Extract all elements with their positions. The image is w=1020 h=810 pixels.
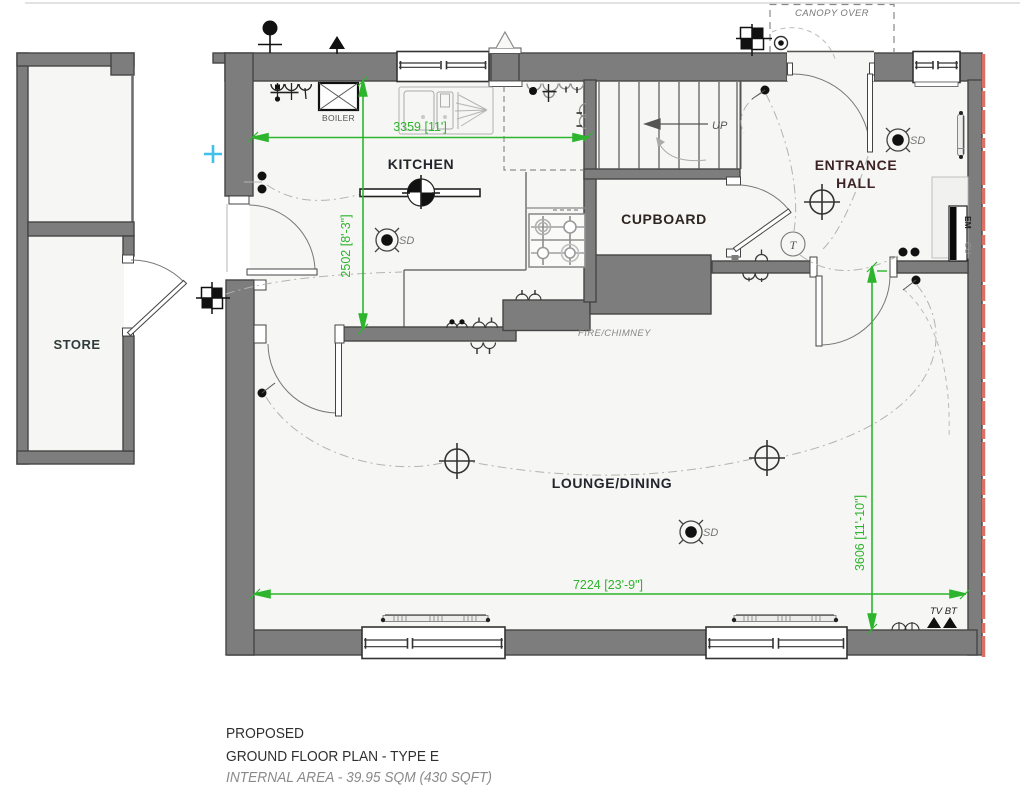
svg-text:CANOPY OVER: CANOPY OVER	[795, 8, 869, 19]
svg-text:INTERNAL AREA - 39.95 SQM (430: INTERNAL AREA - 39.95 SQM (430 SQFT)	[226, 769, 492, 786]
svg-text:3359 [11']: 3359 [11']	[393, 120, 447, 134]
svg-text:2502 [8'-3"]: 2502 [8'-3"]	[339, 214, 353, 277]
svg-text:SD: SD	[703, 527, 718, 539]
svg-text:SD: SD	[910, 135, 925, 147]
svg-text:CU: CU	[963, 242, 973, 254]
svg-text:CUPBOARD: CUPBOARD	[621, 211, 707, 227]
svg-text:FIRE/CHIMNEY: FIRE/CHIMNEY	[578, 328, 651, 339]
svg-text:7224 [23'-9"]: 7224 [23'-9"]	[573, 578, 643, 592]
svg-text:EM: EM	[963, 216, 973, 229]
svg-text:GROUND FLOOR PLAN - TYPE E: GROUND FLOOR PLAN - TYPE E	[226, 748, 439, 765]
svg-text:STORE: STORE	[53, 337, 100, 352]
svg-text:UP: UP	[712, 120, 728, 132]
svg-text:LOUNGE/DINING: LOUNGE/DINING	[552, 475, 673, 491]
svg-text:BOILER: BOILER	[322, 113, 355, 123]
svg-text:ENTRANCE: ENTRANCE	[815, 157, 898, 173]
svg-text:HALL: HALL	[836, 175, 876, 191]
svg-text:KITCHEN: KITCHEN	[388, 156, 454, 172]
svg-text:3606 [11'-10"]: 3606 [11'-10"]	[853, 495, 867, 571]
svg-text:TV BT: TV BT	[930, 606, 958, 617]
svg-text:SD: SD	[399, 235, 414, 247]
svg-text:PROPOSED: PROPOSED	[226, 725, 304, 742]
